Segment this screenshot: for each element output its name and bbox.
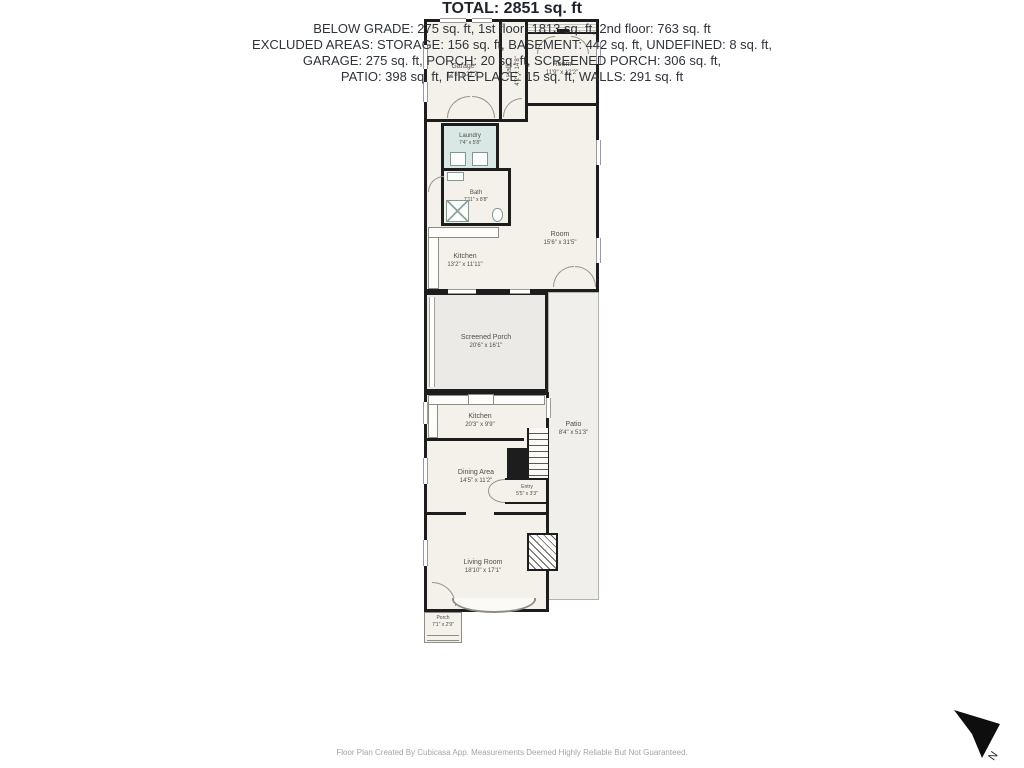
toilet-icon [492, 208, 503, 222]
footer-disclaimer: Floor Plan Created By Cubicasa App. Meas… [0, 748, 1024, 757]
room-living: Living Room 18'10" x 17'1" [442, 556, 524, 578]
total-area-text: TOTAL: 2851 sq. ft [0, 0, 1024, 18]
window [448, 289, 476, 294]
dryer-icon [472, 152, 488, 166]
room-kitchen-lower: Kitchen 20'3" x 9'9" [440, 410, 520, 432]
interior-wall [424, 438, 524, 441]
room-label-dining: Dining Area 14'5" x 11'2" [458, 469, 494, 485]
interior-wall [494, 512, 549, 515]
north-compass-icon: N [942, 696, 1014, 768]
stove-icon [468, 394, 494, 405]
room-label-patio: Patio 8'4" x 51'3" [559, 421, 589, 437]
staircase [527, 428, 548, 480]
window [423, 458, 428, 484]
floor-plan: Garage 12'8" x 27'7" Hall 4'2" x 14'8" R… [0, 0, 1024, 768]
window [546, 398, 551, 418]
summary-line-3: GARAGE: 275 sq. ft, PORCH: 20 sq. ft, SC… [0, 53, 1024, 69]
window [423, 540, 428, 566]
kitchen-counter [428, 404, 438, 438]
window [510, 289, 530, 294]
window [596, 238, 601, 263]
room-label-living: Living Room 18'10" x 17'1" [464, 559, 503, 575]
room-dining: Dining Area 14'5" x 11'2" [438, 466, 514, 488]
room-label-kitchen-lower: Kitchen 20'3" x 9'9" [465, 413, 495, 429]
room-label-porch: Porch 7'1" x 2'9" [432, 616, 454, 629]
porch-steps [427, 631, 459, 641]
summary-line-1: BELOW GRADE: 275 sq. ft, 1st floor: 1813… [0, 21, 1024, 37]
sink-icon [447, 172, 464, 181]
summary-line-4: PATIO: 398 sq. ft, FIREPLACE: 15 sq. ft,… [0, 69, 1024, 85]
shower-icon [446, 200, 469, 222]
room-kitchen-upper: Kitchen 13'2" x 11'11" [432, 250, 498, 272]
room-label-laundry: Laundry 7'4" x 5'8" [459, 133, 481, 147]
window [423, 82, 428, 102]
area-summary: TOTAL: 2851 sq. ft BELOW GRADE: 275 sq. … [0, 0, 1024, 85]
interior-wall [424, 512, 466, 515]
room-label-big: Room 15'6" x 31'5" [544, 231, 577, 247]
room-big: Room 15'6" x 31'5" [528, 228, 592, 250]
room-label-kitchen-upper: Kitchen 13'2" x 11'11" [447, 253, 482, 269]
floor-plan-page: Garage 12'8" x 27'7" Hall 4'2" x 14'8" R… [0, 0, 1024, 768]
window [423, 402, 428, 424]
compass-arrow-icon [954, 710, 1000, 758]
compass-north-label: N [986, 749, 1000, 762]
room-label-entry: Entry 5'5" x 3'3" [516, 485, 538, 498]
room-screened-porch: Screened Porch 20'6" x 16'1" [424, 292, 548, 392]
washer-icon [450, 152, 466, 166]
screen-wall [429, 297, 435, 387]
window [596, 140, 601, 165]
room-label-screened-porch: Screened Porch 20'6" x 16'1" [461, 334, 511, 350]
fireplace [527, 533, 558, 571]
summary-line-2: EXCLUDED AREAS: STORAGE: 156 sq. ft, BAS… [0, 37, 1024, 53]
